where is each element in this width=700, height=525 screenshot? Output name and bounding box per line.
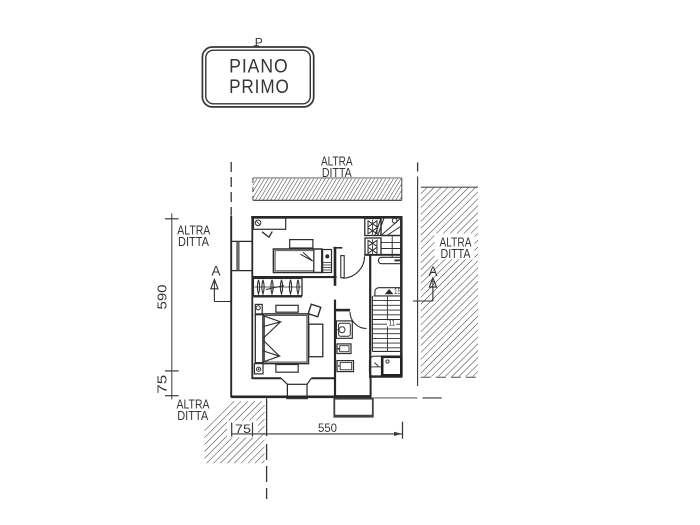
svg-text:A: A xyxy=(428,264,437,279)
svg-text:75: 75 xyxy=(156,375,170,394)
svg-text:P: P xyxy=(255,36,263,50)
svg-text:11: 11 xyxy=(388,319,395,328)
svg-text:550: 550 xyxy=(318,421,337,435)
svg-text:PIANO: PIANO xyxy=(229,57,289,78)
svg-text:DITTA: DITTA xyxy=(177,408,208,423)
svg-text:PRIMO: PRIMO xyxy=(229,77,290,98)
svg-text:15: 15 xyxy=(394,287,401,296)
svg-text:A: A xyxy=(211,263,220,278)
svg-text:DITTA: DITTA xyxy=(441,246,471,261)
svg-text:75: 75 xyxy=(235,422,251,436)
svg-text:DITTA: DITTA xyxy=(178,234,209,249)
svg-text:590: 590 xyxy=(156,284,170,309)
